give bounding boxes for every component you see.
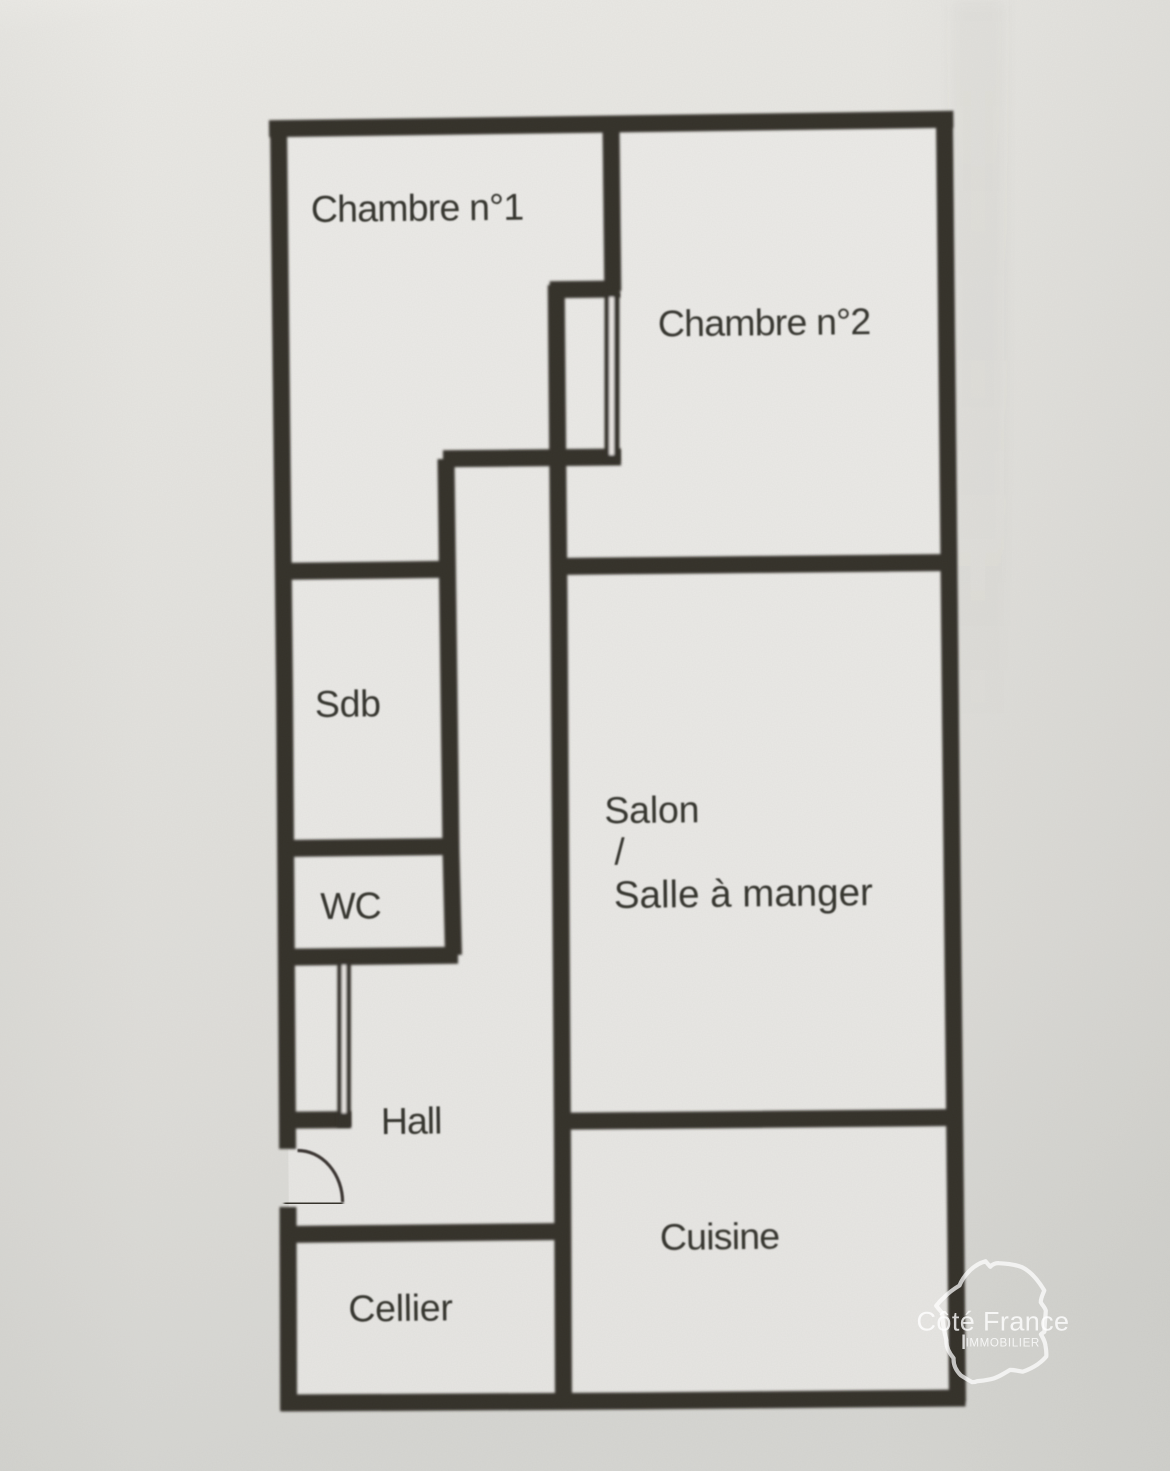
svg-text:Côté France: Côté France — [917, 1306, 1070, 1336]
svg-text:IMMOBILIER: IMMOBILIER — [966, 1336, 1040, 1349]
